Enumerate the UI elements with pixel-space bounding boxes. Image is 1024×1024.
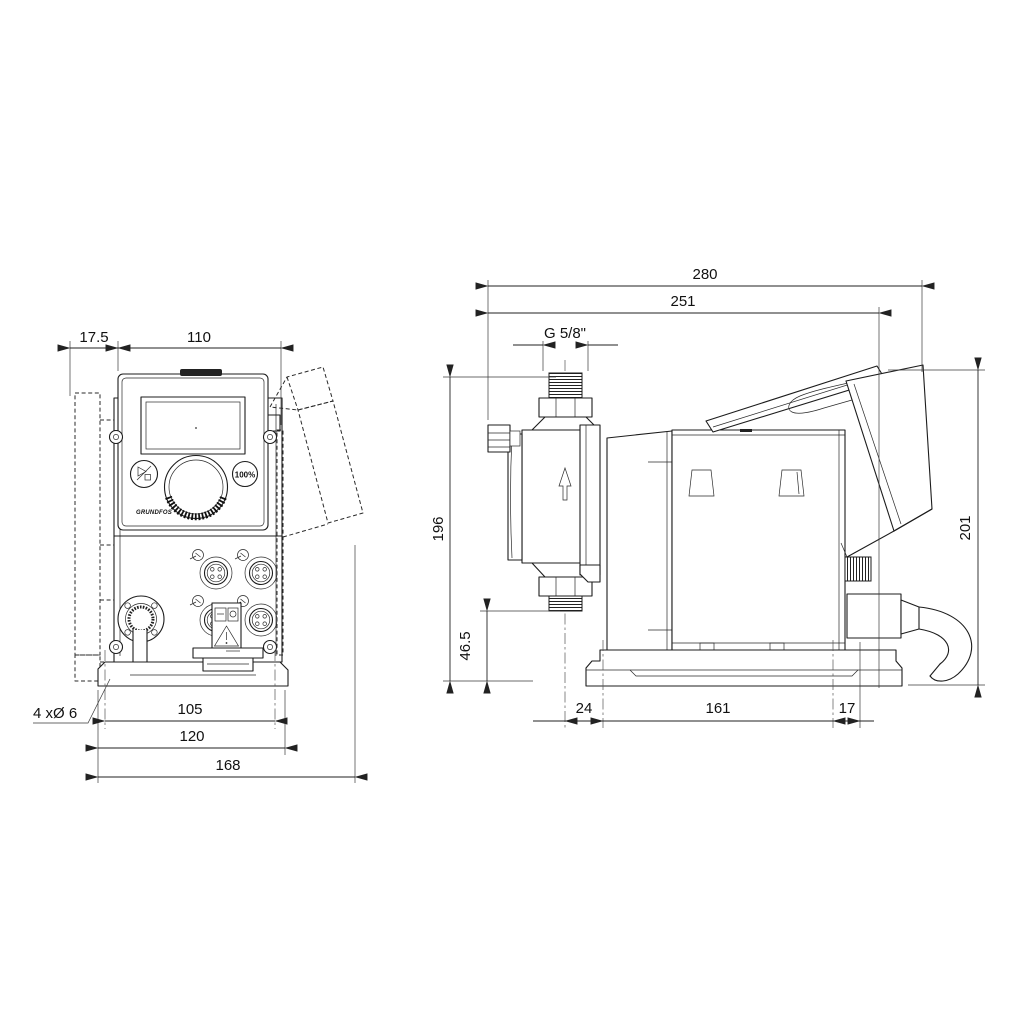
gland-thread [845, 557, 871, 581]
dim-plate-width: 120 [179, 728, 204, 745]
control-panel: 100% GRUNDFOS [118, 369, 268, 530]
drive-housing [580, 425, 845, 650]
base-plate-side [586, 650, 902, 686]
open-cover-dashed [270, 367, 363, 655]
dimensional-drawing: 100% GRUNDFOS [0, 0, 1024, 1024]
connector-1 [200, 557, 232, 589]
dim-cover-depth: 251 [670, 293, 695, 310]
top-tab [180, 369, 222, 376]
thread-size-label: G 5/8" [544, 325, 586, 342]
connector-4 [245, 604, 277, 636]
dim-rear-offset: 17 [839, 700, 856, 717]
connector-2 [245, 557, 277, 589]
start-stop-button[interactable] [131, 461, 158, 488]
max-capacity-button[interactable]: 100% [233, 462, 258, 487]
side-view: 280 251 G 5/8" 196 46.5 201 [430, 266, 985, 730]
rail-clamp [193, 648, 263, 671]
brand-logo: GRUNDFOS [136, 510, 172, 516]
wall-bracket [75, 393, 114, 681]
dim-total-height: 201 [957, 515, 974, 540]
warning-label [212, 603, 241, 649]
cover-clip [689, 470, 714, 496]
dim-height: 196 [430, 516, 447, 541]
drawing-canvas: 100% GRUNDFOS [0, 0, 1024, 1024]
dim-valve-height: 46.5 [457, 631, 474, 660]
dim-hole-spacing-front: 105 [177, 701, 202, 718]
front-view: 100% GRUNDFOS [33, 329, 363, 783]
dim-total-depth: 280 [692, 266, 717, 283]
cover-clip [779, 470, 804, 496]
dim-head-offset: 24 [576, 700, 593, 717]
max-capacity-label: 100% [235, 471, 255, 480]
dim-wall-offset: 17.5 [79, 329, 108, 346]
dim-body-width: 110 [187, 329, 211, 346]
adjustment-knob[interactable] [165, 456, 228, 519]
discharge-thread [549, 596, 582, 611]
dim-hole-spacing-side: 161 [705, 700, 730, 717]
holes-label: 4 xØ 6 [33, 705, 77, 722]
dim-total-width: 168 [215, 757, 240, 774]
